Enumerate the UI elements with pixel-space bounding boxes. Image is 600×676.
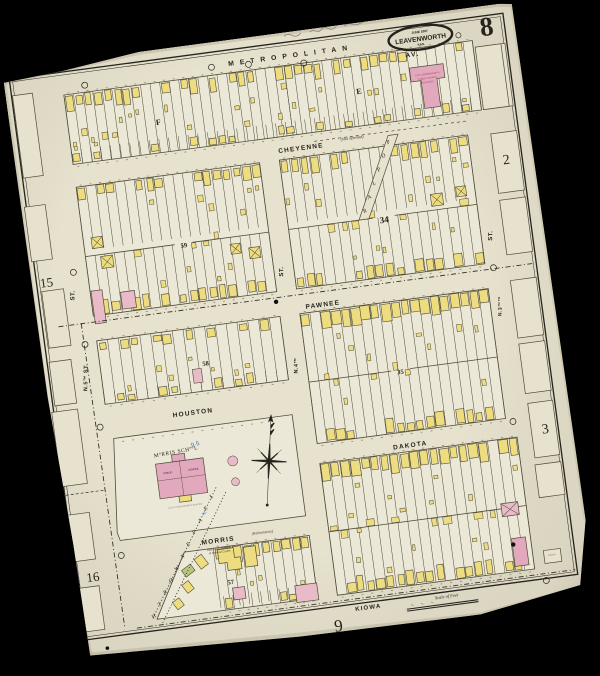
svg-text:15: 15 [39,274,54,291]
svg-text:ST.: ST. [279,266,285,276]
svg-text:ST.: ST. [488,231,494,241]
svg-text:16: 16 [85,569,100,586]
svg-text:E: E [356,87,362,97]
svg-text:N.3™™: N.3™™ [498,296,504,316]
svg-text:ST.: ST. [70,290,76,300]
svg-text:N.4™: N.4™ [294,357,300,373]
svg-text:34: 34 [379,214,390,225]
svg-text:N.5™ ST.: N.5™ ST. [83,364,89,392]
